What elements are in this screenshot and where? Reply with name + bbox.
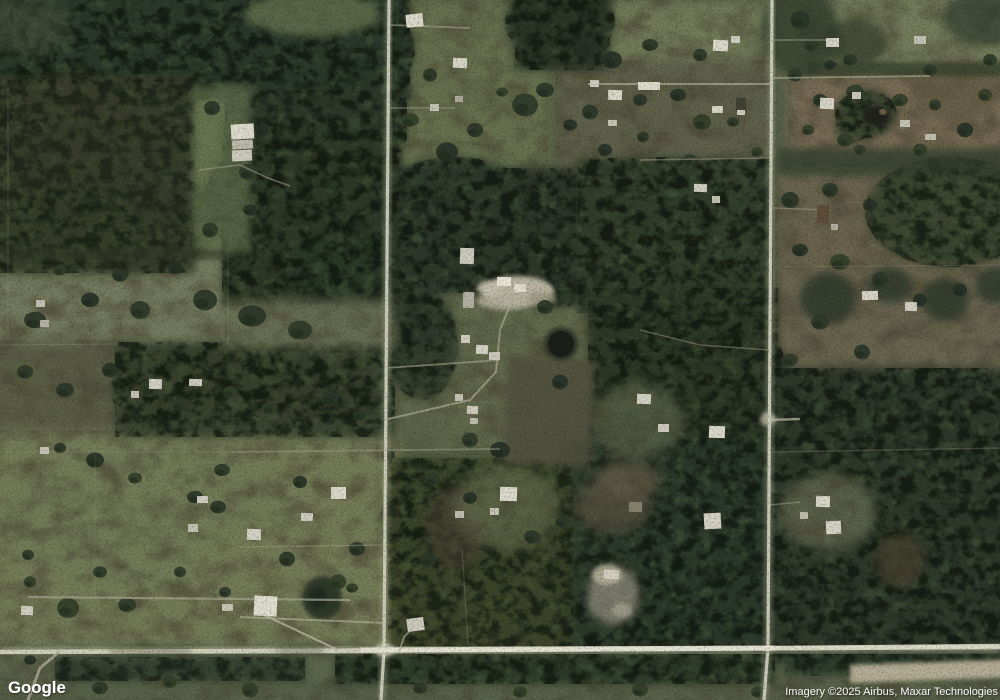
svg-text:Imagery ©2025 Airbus, Maxar Te: Imagery ©2025 Airbus, Maxar Technologies [785,686,998,698]
svg-text:Google: Google [8,678,66,697]
